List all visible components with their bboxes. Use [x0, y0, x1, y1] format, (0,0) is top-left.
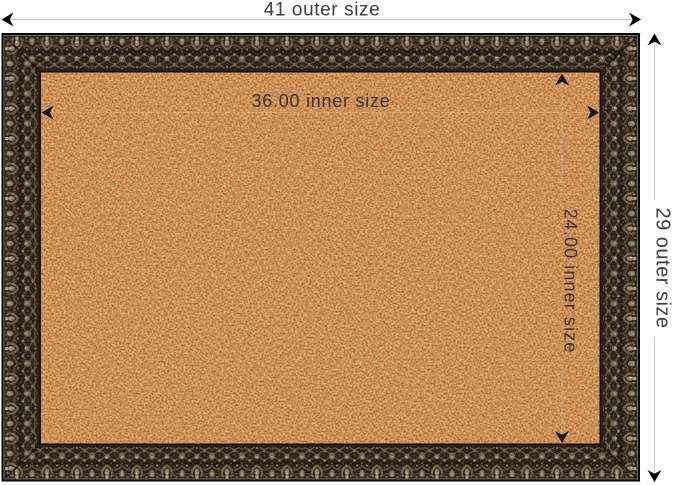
svg-text:24.00 inner size: 24.00 inner size [561, 209, 581, 354]
svg-text:29 outer size: 29 outer size [652, 207, 674, 328]
svg-text:36.00 inner size: 36.00 inner size [251, 91, 390, 111]
svg-text:41 outer size: 41 outer size [264, 0, 381, 21]
